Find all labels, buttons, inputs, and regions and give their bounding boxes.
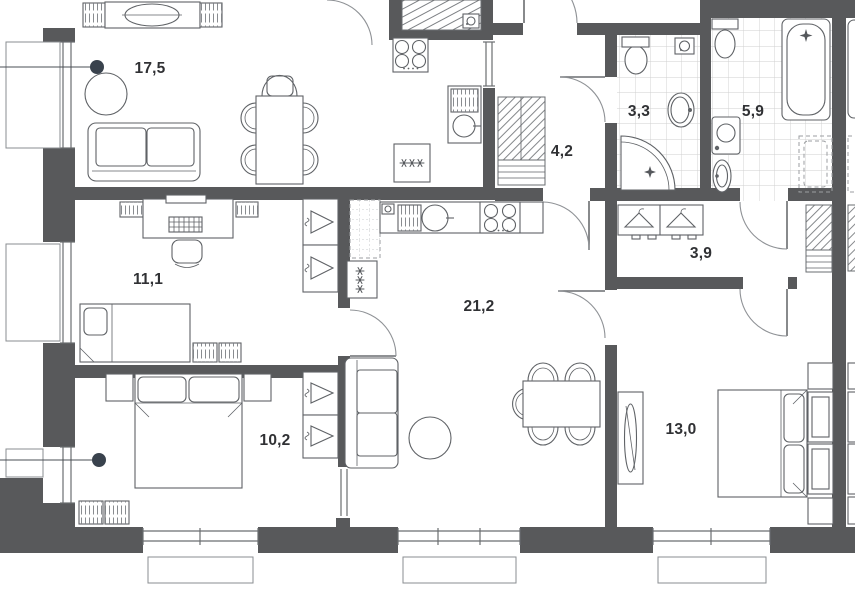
side-table [85,73,127,115]
door-hall-kitchen [543,201,589,250]
room-kitchen-living [345,200,600,468]
room-area-label: 21,2 [464,298,495,315]
opening-kitchen-hallway [483,42,495,86]
window-kitchen-living-bottom [398,528,520,583]
room-area-label: 10,2 [260,432,291,449]
door-bedroom-master [558,291,605,338]
balcony-door-living [327,0,372,45]
room-living [83,2,318,184]
window-study [6,242,75,343]
sink-icon [668,93,694,127]
desk [143,195,233,238]
opening-bedroom-small [341,469,347,516]
door-bathroom-shower [560,77,605,122]
room-area-label: 13,0 [666,421,697,438]
window-bedroom-small-bottom [143,528,258,583]
window-living [6,42,75,148]
room-area-label: 5,9 [742,103,764,120]
room-wardrobe-hall [618,205,832,272]
coffee-table [409,417,451,459]
wardrobe-bedroom-small [303,372,338,458]
vent-fan-icon [463,14,479,28]
room-area-label: 3,9 [690,245,712,262]
double-bed [135,374,242,488]
room-area-label: 3,3 [628,103,650,120]
kitchen-living17 [393,38,481,182]
door-closet-bathroom [740,201,787,249]
hanging-rail [618,205,703,239]
washing-machine-icon [712,117,740,154]
desk-chair [172,240,202,268]
sink-unit [448,86,481,143]
bathtub-icon [782,19,830,120]
floor-plan: 17,5 11,1 10,2 21,2 4,2 3,3 5,9 3,9 13,0 [0,0,855,600]
fridge-kitchen-living [347,261,377,298]
kitchen-counter [380,202,543,233]
corner-cabinet [350,200,380,258]
door-closet-bedroom [740,289,787,336]
room-area-label: 17,5 [135,60,166,77]
room-area-label: 11,1 [133,271,163,288]
hall-wardrobe [498,97,545,185]
dining-table-kitchen-living [513,363,600,445]
room-study [80,195,338,362]
door-study [350,310,396,356]
sofa-kitchen-living [345,358,398,468]
window-bedroom-master-bottom [653,528,770,583]
hob-icon [480,202,520,233]
vent-fan-icon [675,38,694,54]
sofa-living [88,123,200,181]
stove-top [393,38,428,72]
mirror-wardrobe [618,392,643,484]
room-hallway [498,97,545,185]
tv-console [105,2,200,28]
entry-door [524,0,577,23]
dining-table-living [241,75,318,184]
ventilation-shaft [402,0,481,30]
double-bed [718,390,807,497]
room-bedroom-small [79,372,338,524]
room-bedroom-master [618,363,833,524]
fridge-living [394,144,430,182]
room-area-label: 4,2 [551,143,573,160]
shelf-cabinet [806,205,832,272]
callout-dot [90,60,104,74]
pedestal-sink-icon [713,160,731,192]
wardrobe-study [303,199,338,292]
callout-dot [92,453,106,467]
neighbor-fragments [848,20,855,524]
single-bed [80,304,190,362]
